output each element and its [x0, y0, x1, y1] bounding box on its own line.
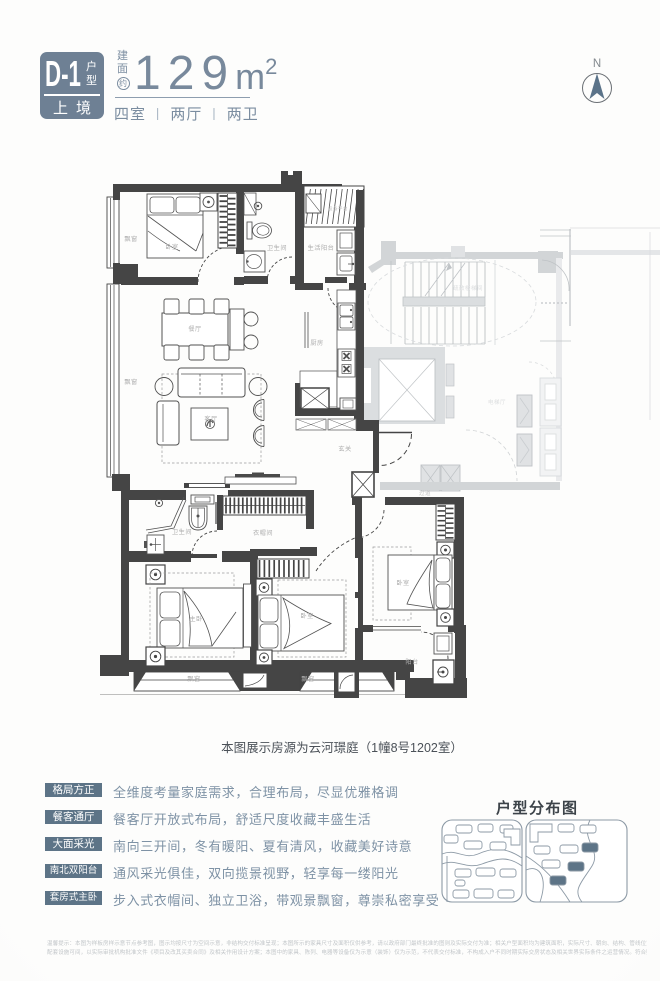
- svg-text:设备平台: 设备平台: [328, 205, 348, 212]
- svg-text:N: N: [593, 58, 601, 70]
- svg-text:卧室: 卧室: [300, 612, 313, 620]
- svg-text:卫生间: 卫生间: [172, 528, 192, 536]
- svg-text:生活阳台: 生活阳台: [308, 244, 335, 252]
- svg-text:衣帽间: 衣帽间: [253, 529, 273, 537]
- svg-text:卫生间: 卫生间: [267, 244, 287, 252]
- svg-text:电梯厅: 电梯厅: [488, 398, 506, 406]
- svg-text:玄关: 玄关: [338, 445, 351, 453]
- svg-text:过道: 过道: [419, 489, 431, 497]
- svg-text:疏散楼梯间: 疏散楼梯间: [453, 284, 483, 292]
- svg-text:阳台: 阳台: [405, 658, 418, 666]
- svg-text:飘窗: 飘窗: [187, 675, 200, 683]
- svg-text:餐厅: 餐厅: [188, 325, 201, 333]
- svg-text:厨房: 厨房: [310, 339, 323, 347]
- svg-text:飘窗: 飘窗: [124, 235, 137, 243]
- svg-text:主卧: 主卧: [189, 615, 202, 623]
- svg-text:卧室: 卧室: [396, 579, 409, 587]
- svg-text:卧室: 卧室: [165, 243, 178, 251]
- svg-text:飘窗: 飘窗: [301, 675, 314, 683]
- svg-text:客厅: 客厅: [204, 415, 217, 423]
- svg-text:飘窗: 飘窗: [124, 378, 137, 386]
